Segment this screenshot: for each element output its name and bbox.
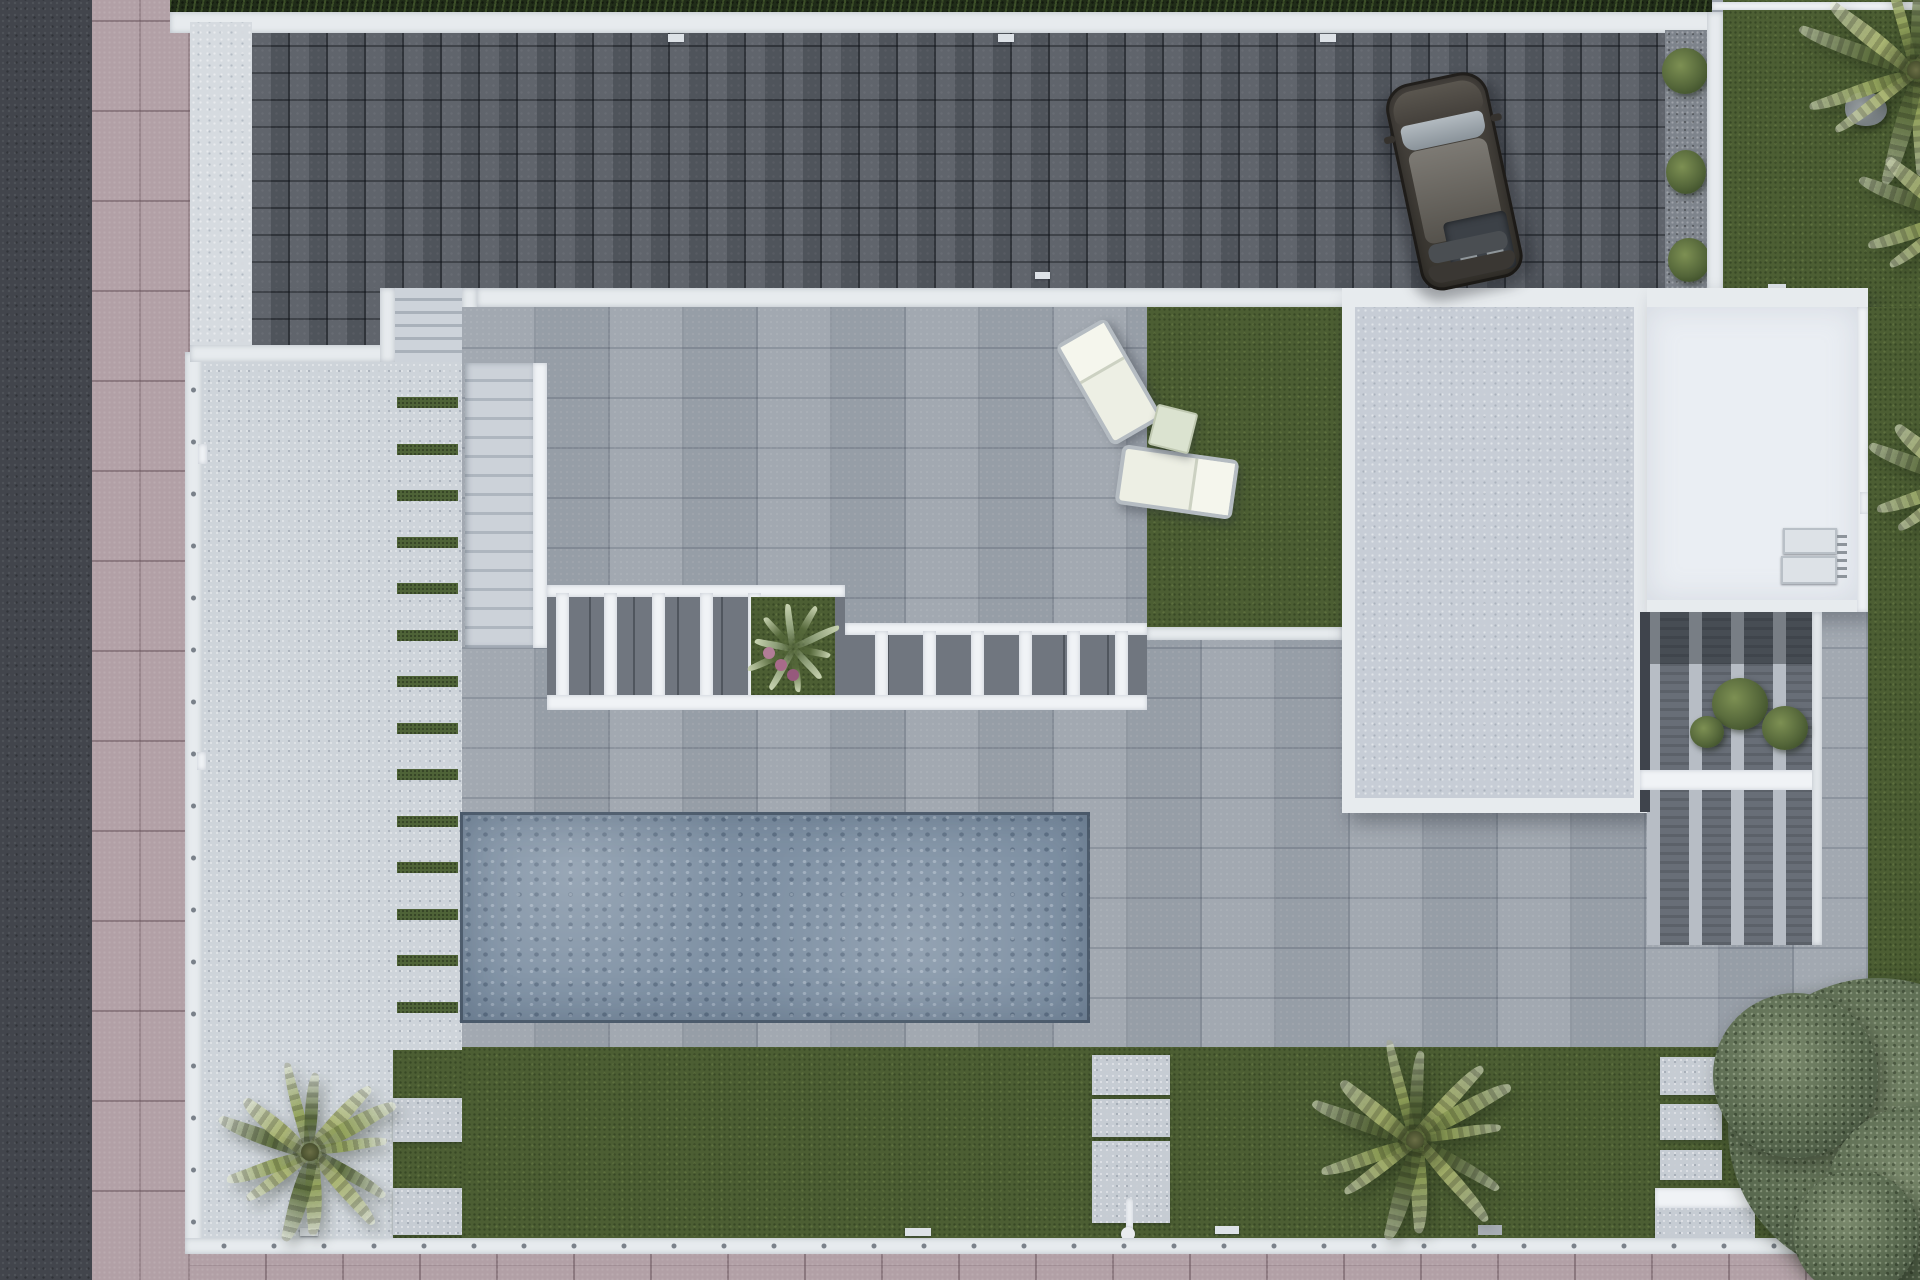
car-mirror: [1383, 135, 1395, 144]
pergola-post: [875, 631, 888, 699]
pergola-post: [604, 593, 617, 699]
entry-pillar: [190, 22, 252, 352]
utility-pad-lip: [1655, 1188, 1755, 1208]
pergola-rail-bottom: [547, 695, 1147, 710]
stepping-stone: [1660, 1104, 1722, 1140]
path-grass-stripe: [397, 583, 458, 594]
path-grass-stripe: [397, 769, 458, 780]
gate-handle: [198, 444, 207, 464]
perimeter-wall-top: [170, 12, 1723, 33]
path-grass-stripe: [397, 723, 458, 734]
perimeter-wall-left: [185, 352, 202, 1252]
patio-edge: [1812, 612, 1822, 945]
path-grass-stripe: [397, 816, 458, 827]
shrub-icon: [1666, 150, 1706, 194]
palm-bottom-center: [1303, 1028, 1527, 1252]
pergola-post: [1115, 631, 1128, 699]
wall-right-of-driveway: [1707, 12, 1723, 307]
sidewalk-left: [92, 0, 190, 1280]
ac-unit: [1781, 556, 1837, 584]
palm-trunk-top: [301, 1143, 319, 1161]
wall-light: [1035, 272, 1050, 279]
pergola-post: [1019, 631, 1032, 699]
pergola-post: [556, 593, 569, 699]
palm-trunk-top: [1907, 61, 1920, 79]
pergola-post: [1067, 631, 1080, 699]
pergola-post: [923, 631, 936, 699]
terrace-stairs: [465, 363, 533, 648]
stepping-stone: [1660, 1150, 1722, 1180]
pergola-rail-top-left: [547, 585, 845, 597]
path-grass-stripe: [397, 397, 458, 408]
palm-top-right-b: [1850, 107, 1920, 323]
garden-path: [393, 362, 462, 1050]
path-grass-stripe: [397, 909, 458, 920]
ac-unit: [1783, 528, 1837, 554]
path-grass-stripe: [397, 490, 458, 501]
sunken-patio-right: [845, 635, 1147, 695]
wall-light: [998, 34, 1014, 42]
wall-entry-step: [190, 345, 395, 362]
chair-headrest: [1191, 459, 1235, 516]
stair-rail: [533, 363, 547, 648]
swimming-pool: [460, 812, 1090, 1023]
wall-light: [668, 34, 684, 42]
patio-shrub: [1690, 716, 1724, 748]
street-asphalt: [0, 0, 92, 1280]
palm-bottom-left: [210, 1052, 410, 1252]
path-grass-stripe: [397, 862, 458, 873]
wall-light: [905, 1228, 931, 1236]
stepping-stone: [1092, 1099, 1170, 1137]
flower: [787, 669, 799, 681]
car-roof: [1407, 136, 1505, 245]
ac-pipes: [1837, 534, 1847, 578]
aerial-villa-render: [0, 0, 1920, 1280]
palm-right-edge: [1860, 376, 1920, 584]
gate-handle: [197, 752, 206, 770]
shrub-icon: [1668, 238, 1710, 282]
entry-stairs: [395, 288, 462, 362]
sidewalk-bottom: [190, 1252, 1920, 1280]
path-grass-stripe: [397, 444, 458, 455]
patio-shrub: [1762, 706, 1808, 750]
wall-light: [1215, 1226, 1239, 1234]
lounge-lawn-edge-wall: [1147, 627, 1342, 640]
stair-opening-wall-left: [380, 288, 395, 362]
stepping-stone: [1092, 1055, 1170, 1095]
flower: [775, 659, 787, 671]
pergola-post: [700, 593, 713, 699]
driveway-notch: [252, 288, 380, 345]
path-grass-stripe: [397, 676, 458, 687]
path-grass-stripe: [397, 1002, 458, 1013]
palm-trunk-top: [1406, 1131, 1424, 1149]
pergola-post: [971, 631, 984, 699]
path-grass-stripe: [397, 630, 458, 641]
perimeter-wall-bottom: [185, 1238, 1920, 1254]
pergola-rail-top-right: [845, 623, 1147, 635]
wall-light: [1320, 34, 1336, 42]
flower: [763, 647, 775, 659]
patio-shadow: [1647, 612, 1812, 664]
patio-beam: [1640, 770, 1822, 790]
pergola-post: [652, 593, 665, 699]
shrub-icon: [1662, 48, 1708, 94]
path-grass-stripe: [397, 537, 458, 548]
main-roof: [1355, 307, 1634, 798]
path-grass-stripe: [397, 955, 458, 966]
